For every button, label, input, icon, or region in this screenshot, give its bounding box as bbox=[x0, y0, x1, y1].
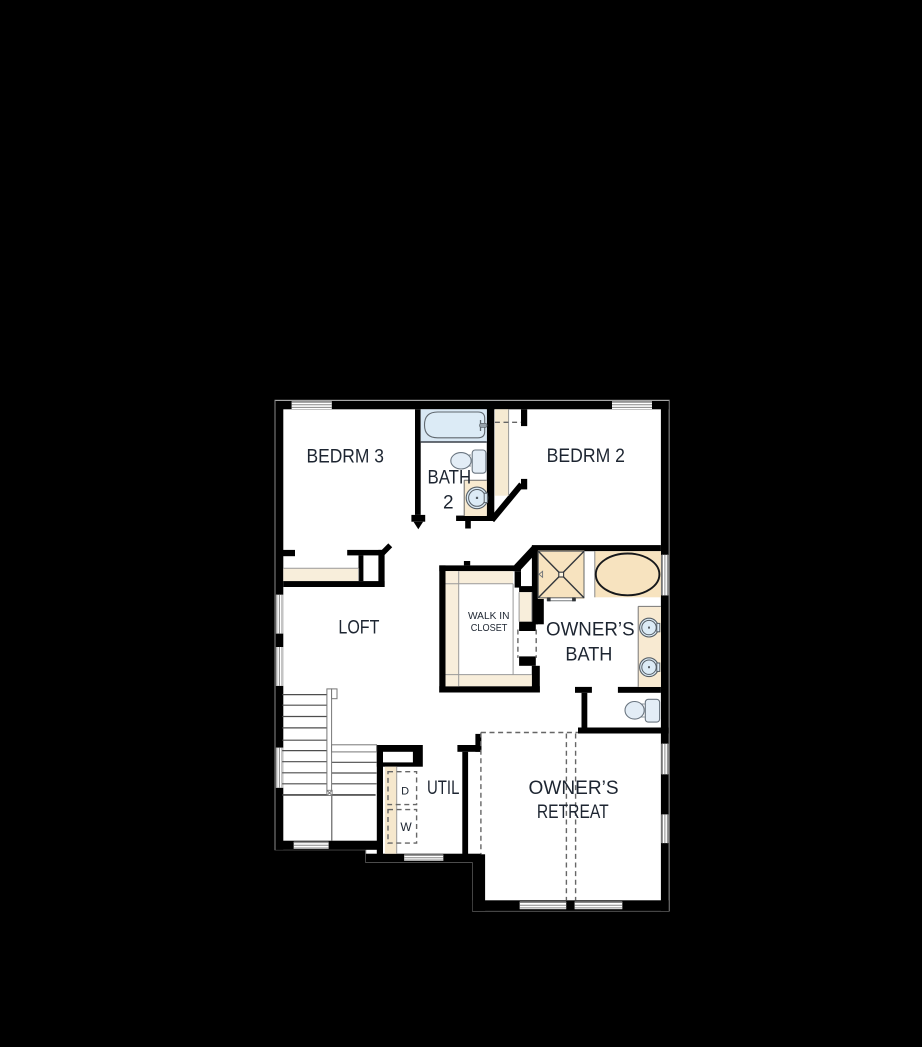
svg-text:OWNER’S: OWNER’S bbox=[546, 620, 635, 641]
svg-text:BATH: BATH bbox=[565, 645, 612, 666]
svg-text:D: D bbox=[401, 786, 409, 798]
svg-text:UTIL: UTIL bbox=[427, 778, 459, 799]
svg-text:LOFT: LOFT bbox=[338, 618, 379, 639]
svg-text:BATH: BATH bbox=[428, 468, 472, 489]
svg-text:W: W bbox=[400, 820, 412, 834]
svg-text:BEDRM 3: BEDRM 3 bbox=[306, 446, 384, 467]
svg-text:OWNER’S: OWNER’S bbox=[529, 778, 619, 799]
svg-text:2: 2 bbox=[443, 493, 454, 514]
svg-text:WALK IN: WALK IN bbox=[468, 610, 510, 622]
svg-text:BEDRM 2: BEDRM 2 bbox=[547, 446, 625, 467]
svg-text:CLOSET: CLOSET bbox=[471, 622, 508, 634]
svg-text:RETREAT: RETREAT bbox=[537, 802, 609, 823]
